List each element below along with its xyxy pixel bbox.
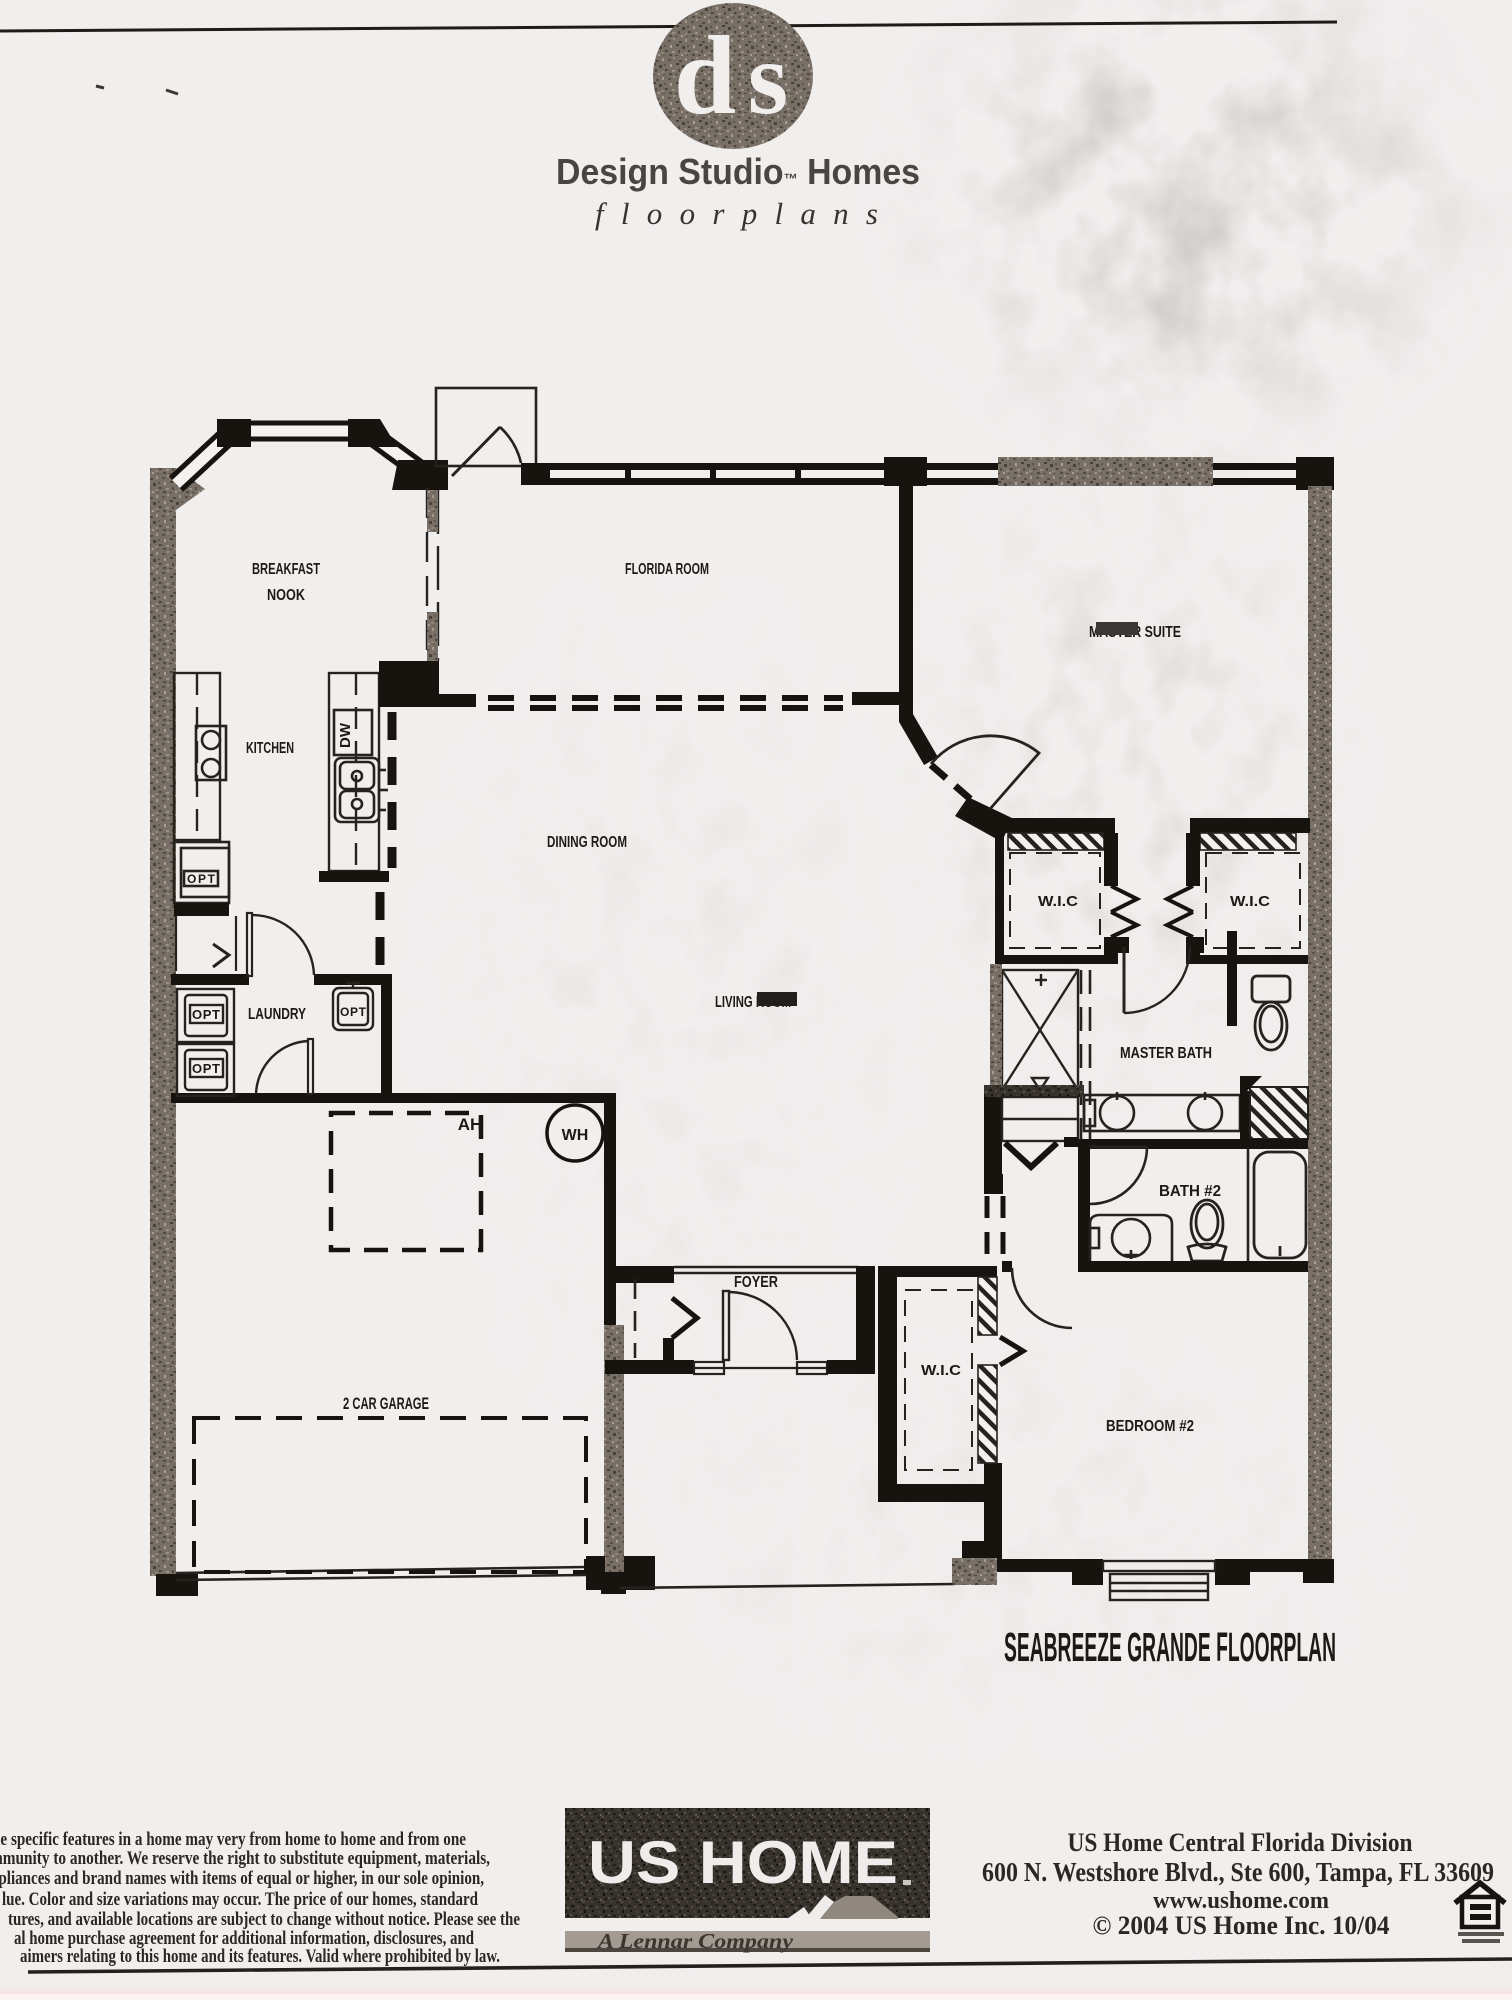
- svg-text:SEABREEZE GRANDE FLOORPLAN: SEABREEZE GRANDE FLOORPLAN: [1004, 1624, 1336, 1670]
- svg-text:US Home Central Florida Divisi: US Home Central Florida Division: [1068, 1828, 1413, 1857]
- svg-text:aimers relating to this home a: aimers relating to this home and its fea…: [20, 1946, 500, 1967]
- svg-text:NOOK: NOOK: [267, 587, 305, 604]
- svg-text:OPT: OPT: [192, 1061, 220, 1076]
- svg-text:DINING ROOM: DINING ROOM: [547, 834, 627, 851]
- svg-text:MASTER BATH: MASTER BATH: [1120, 1045, 1212, 1062]
- svg-text:Design Studio™ Homes: Design Studio™ Homes: [556, 151, 920, 192]
- svg-text:A Lennar Company: A Lennar Company: [596, 1929, 794, 1953]
- svg-text:© 2004 US Home Inc. 10/04: © 2004 US Home Inc. 10/04: [1093, 1911, 1390, 1940]
- svg-text:OPT: OPT: [187, 872, 216, 886]
- svg-text:floorplans: floorplans: [595, 196, 891, 231]
- svg-text:FOYER: FOYER: [734, 1274, 778, 1291]
- svg-text:AH: AH: [458, 1115, 483, 1134]
- svg-text:he specific features in a home: he specific features in a home may very …: [0, 1829, 466, 1850]
- svg-text:KITCHEN: KITCHEN: [246, 740, 294, 757]
- svg-text:ppliances and brand names with: ppliances and brand names with items of …: [0, 1868, 484, 1889]
- svg-text:BREAKFAST: BREAKFAST: [252, 561, 320, 578]
- svg-text:W.I.C: W.I.C: [1230, 893, 1270, 910]
- svg-text:OPT: OPT: [192, 1007, 220, 1022]
- svg-text:DW: DW: [337, 722, 354, 748]
- svg-text:600 N. Westshore Blvd., Ste 60: 600 N. Westshore Blvd., Ste 600, Tampa, …: [982, 1857, 1494, 1887]
- svg-text:US HOME: US HOME: [588, 1829, 898, 1896]
- svg-text:lue. Color and size variations: lue. Color and size variations may occur…: [2, 1889, 478, 1910]
- svg-text:W.I.C: W.I.C: [1038, 893, 1078, 910]
- svg-text:WH: WH: [562, 1127, 589, 1144]
- svg-text:OPT: OPT: [340, 1005, 367, 1019]
- svg-text:mmunity to another. We reserv: mmunity to another. We reserve the right…: [0, 1848, 490, 1869]
- svg-text:BATH #2: BATH #2: [1159, 1183, 1221, 1200]
- svg-text:FLORIDA ROOM: FLORIDA ROOM: [625, 561, 709, 578]
- svg-text:s: s: [748, 21, 788, 136]
- svg-text:W.I.C: W.I.C: [921, 1362, 961, 1379]
- svg-text:tures, and available locations: tures, and available locations are subje…: [8, 1909, 520, 1930]
- svg-text:2 CAR GARAGE: 2 CAR GARAGE: [343, 1394, 429, 1413]
- svg-text:BEDROOM #2: BEDROOM #2: [1106, 1418, 1194, 1435]
- svg-text:LAUNDRY: LAUNDRY: [248, 1006, 306, 1023]
